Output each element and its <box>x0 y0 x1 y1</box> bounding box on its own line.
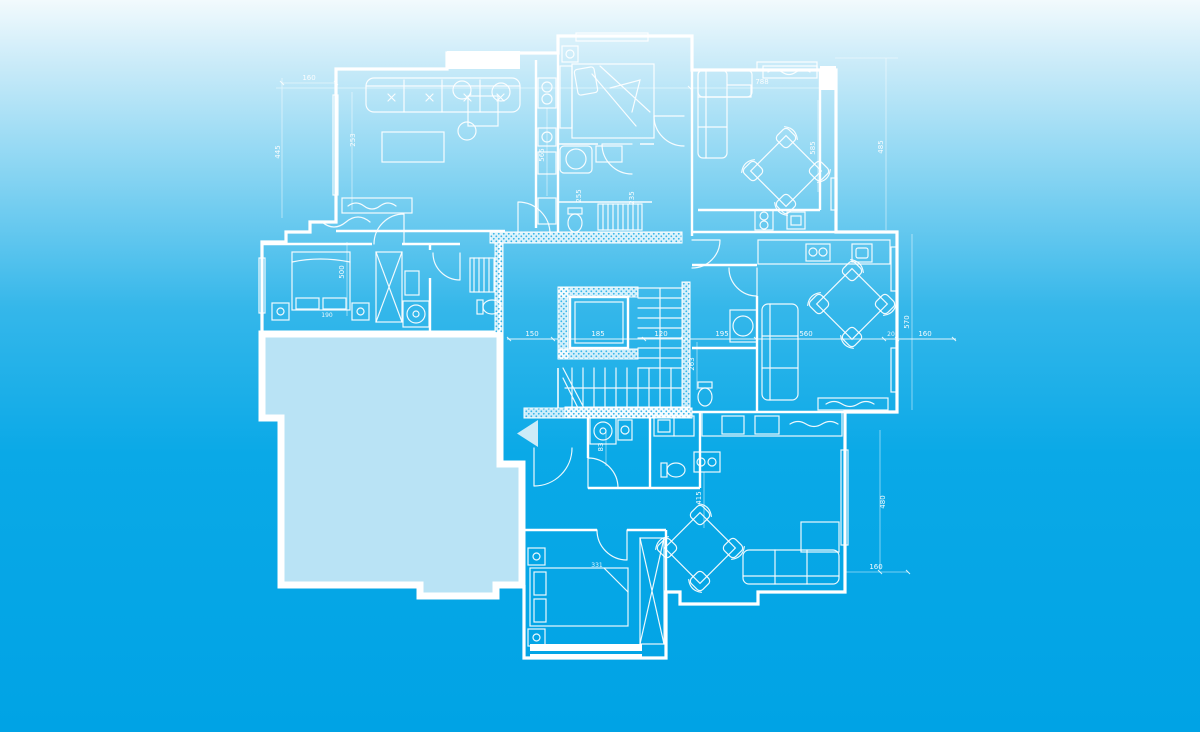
dimension-label: 565 <box>538 148 546 161</box>
dimension-label: 255 <box>575 189 583 202</box>
blueprint-floor-plan: 160 445 253 500 190 565 255 235 788 585 … <box>0 0 1200 732</box>
dimension-label: 570 <box>903 315 911 328</box>
window-sill <box>530 644 642 651</box>
window-bay <box>447 51 520 69</box>
blueprint-screenshot: 160 445 253 500 190 565 255 235 788 585 … <box>0 0 1200 732</box>
dimension-label: 235 <box>628 191 636 204</box>
window-sill <box>530 654 642 658</box>
dimension-label: 160 <box>918 330 931 338</box>
dimension-label: 150 <box>525 330 538 338</box>
dimension-label: 560 <box>799 330 812 338</box>
dimension-label: 263 <box>688 357 696 370</box>
dimension-label: 788 <box>755 78 768 86</box>
dimension-label: 445 <box>274 145 282 158</box>
dimension-label: 185 <box>591 330 604 338</box>
dimension-label: 160 <box>302 74 315 82</box>
terrace-area <box>262 334 522 596</box>
dimension-label: 160 <box>869 563 882 571</box>
dimension-label: 20 <box>887 331 895 338</box>
dimension-label: 485 <box>877 140 885 153</box>
background-gradient <box>0 0 1200 732</box>
dimension-label: 120 <box>654 330 667 338</box>
wall-corner <box>820 66 836 90</box>
dimension-label: 331 <box>591 562 603 569</box>
dimension-label: 480 <box>879 495 887 508</box>
dimension-label: 500 <box>338 265 346 278</box>
dimension-label: 83 <box>597 443 605 452</box>
dimension-label: 195 <box>715 330 728 338</box>
dimension-label: 190 <box>321 312 333 319</box>
dimension-label: 253 <box>349 133 357 146</box>
dimension-label: 585 <box>809 141 817 154</box>
dimension-label: 415 <box>695 491 703 504</box>
